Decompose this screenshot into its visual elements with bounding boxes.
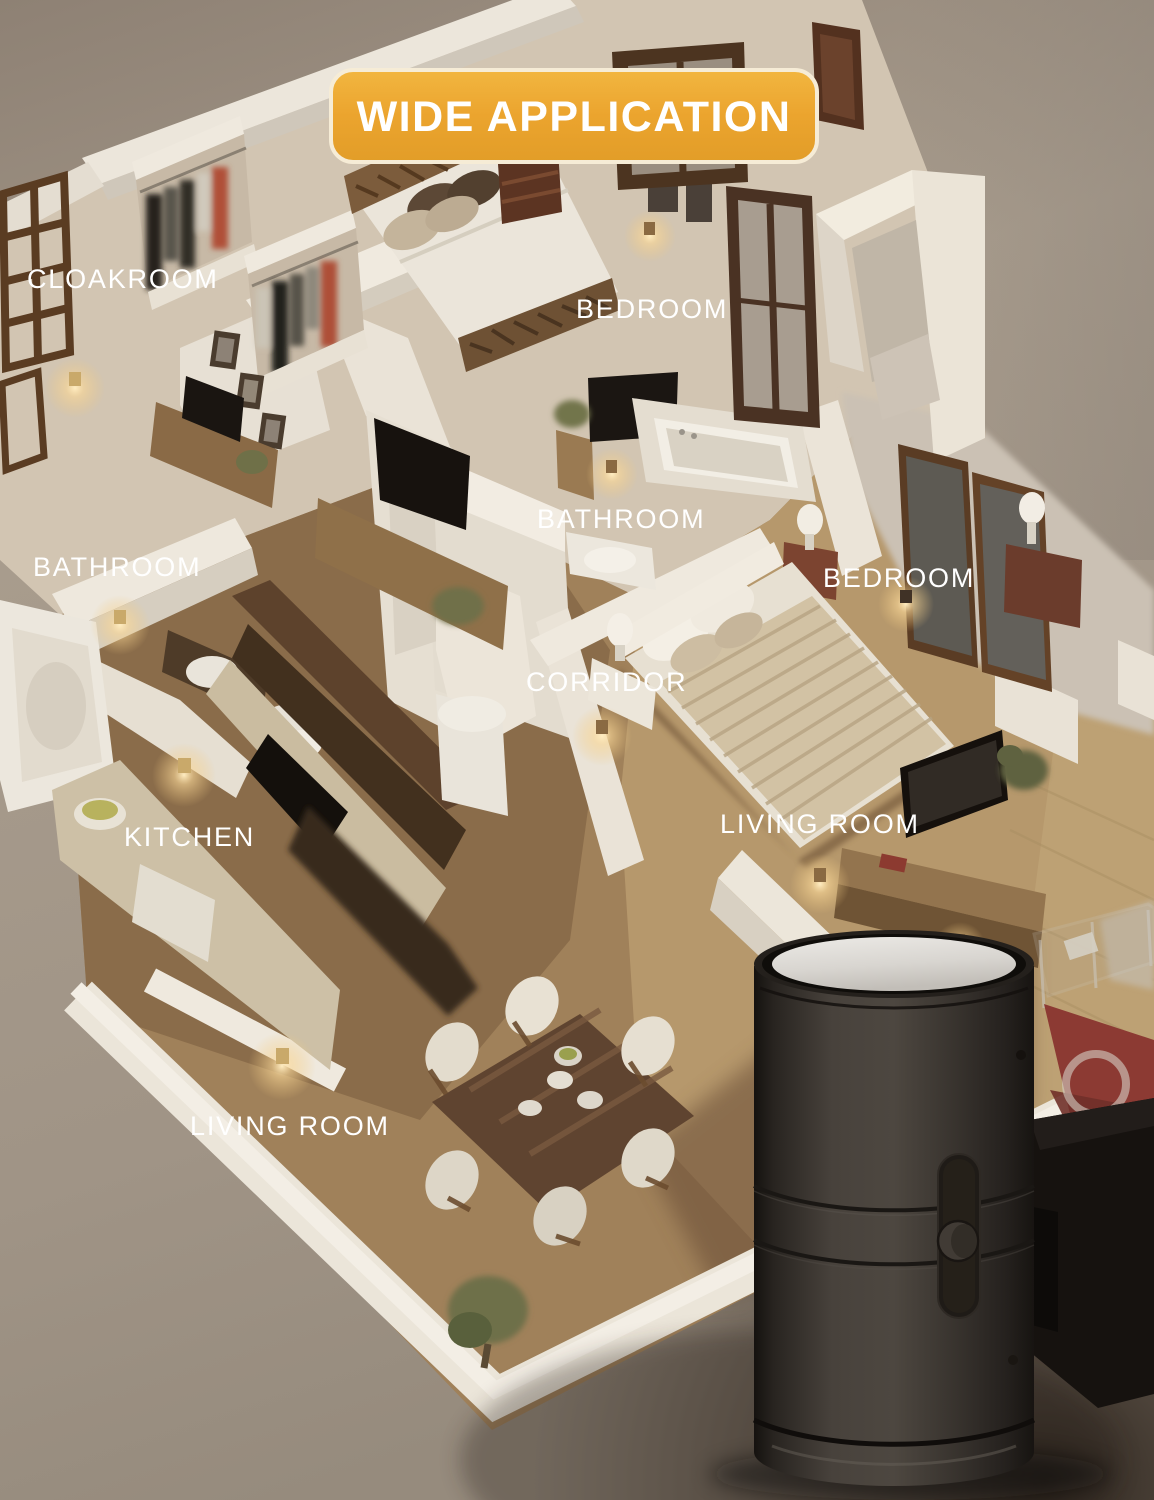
svg-text:BEDROOM: BEDROOM	[576, 294, 728, 324]
svg-text:BATHROOM: BATHROOM	[33, 552, 201, 582]
svg-text:WIDE APPLICATION: WIDE APPLICATION	[357, 93, 792, 141]
svg-text:CORRIDOR: CORRIDOR	[526, 667, 687, 697]
svg-text:LIVING ROOM: LIVING ROOM	[720, 809, 920, 839]
svg-text:BATHROOM: BATHROOM	[537, 504, 705, 534]
svg-text:BEDROOM: BEDROOM	[823, 563, 975, 593]
svg-text:KITCHEN: KITCHEN	[124, 822, 255, 852]
svg-text:LIVING ROOM: LIVING ROOM	[190, 1111, 390, 1141]
svg-text:CLOAKROOM: CLOAKROOM	[27, 264, 219, 294]
